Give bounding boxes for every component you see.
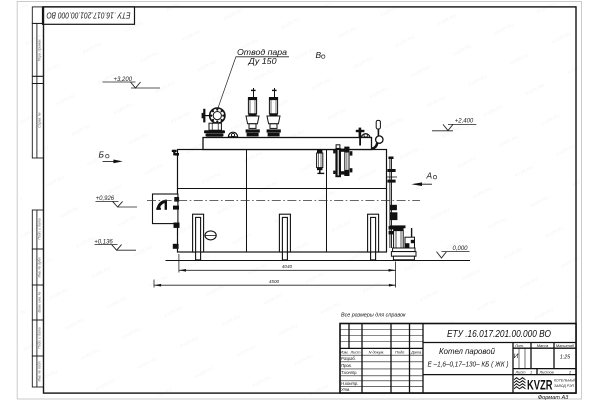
- svg-text:Пров.: Пров.: [341, 363, 352, 368]
- svg-text:ЗАВОД РЭП: ЗАВОД РЭП: [554, 384, 575, 388]
- svg-text:И: И: [514, 353, 519, 360]
- svg-text:1: 1: [530, 369, 532, 374]
- svg-text:Дата: Дата: [410, 349, 422, 354]
- svg-text:Н.контр.: Н.контр.: [341, 381, 358, 386]
- svg-text:Утв.: Утв.: [341, 387, 350, 392]
- svg-text:Перв. примен.: Перв. примен.: [38, 39, 42, 62]
- svg-text:Подп.: Подп.: [395, 349, 405, 354]
- svg-text:+2,400: +2,400: [455, 119, 474, 125]
- svg-text:1:25: 1:25: [560, 354, 571, 360]
- svg-text:Справ. №: Справ. №: [38, 112, 42, 128]
- svg-text:КОТЕЛЬНЫЙ: КОТЕЛЬНЫЙ: [554, 379, 577, 383]
- svg-text:Ду 150: Ду 150: [247, 57, 277, 66]
- svg-text:Инв. № дубл.: Инв. № дубл.: [38, 257, 42, 278]
- svg-text:ЕТУ .16.017.201.00.000 ВО: ЕТУ .16.017.201.00.000 ВО: [46, 11, 131, 20]
- svg-text:В: В: [316, 50, 322, 60]
- svg-text:Лист: Лист: [349, 349, 361, 354]
- svg-text:Все размеры для справок: Все размеры для справок: [341, 312, 406, 318]
- svg-text:Т.контр.: Т.контр.: [341, 370, 358, 375]
- svg-text:Взам. инв. №: Взам. инв. №: [38, 291, 42, 312]
- svg-text:Разраб.: Разраб.: [341, 356, 356, 361]
- svg-text:А: А: [426, 171, 433, 181]
- svg-text:4500: 4500: [269, 279, 280, 284]
- svg-text:Листов: Листов: [539, 369, 554, 374]
- svg-text:Лист: Лист: [515, 369, 527, 374]
- svg-text:Е –1,6–0,17–130– КБ ( ЖК ): Е –1,6–0,17–130– КБ ( ЖК ): [428, 362, 509, 369]
- svg-text:Котел паровой: Котел паровой: [439, 347, 496, 356]
- svg-text:Инв. № подл.: Инв. № подл.: [38, 360, 42, 381]
- svg-text:Масса: Масса: [537, 343, 549, 348]
- svg-text:KVZR: KVZR: [527, 377, 553, 393]
- svg-text:Подп. и дата: Подп. и дата: [38, 327, 42, 348]
- svg-text:Масштаб: Масштаб: [556, 343, 575, 348]
- svg-text:N докум.: N докум.: [369, 349, 385, 354]
- svg-text:Отвод пара: Отвод пара: [237, 48, 288, 57]
- svg-text:ЕТУ .16.017.201.00.000 ВО: ЕТУ .16.017.201.00.000 ВО: [447, 329, 551, 340]
- svg-text:4040: 4040: [282, 264, 293, 269]
- svg-text:Формат А3: Формат А3: [538, 395, 569, 400]
- svg-text:Лит.: Лит.: [514, 343, 524, 348]
- svg-text:0,000: 0,000: [452, 246, 468, 252]
- svg-text:Б: Б: [99, 150, 105, 160]
- svg-text:Подп. и дата: Подп. и дата: [38, 218, 42, 239]
- svg-text:Изм.: Изм.: [340, 349, 348, 354]
